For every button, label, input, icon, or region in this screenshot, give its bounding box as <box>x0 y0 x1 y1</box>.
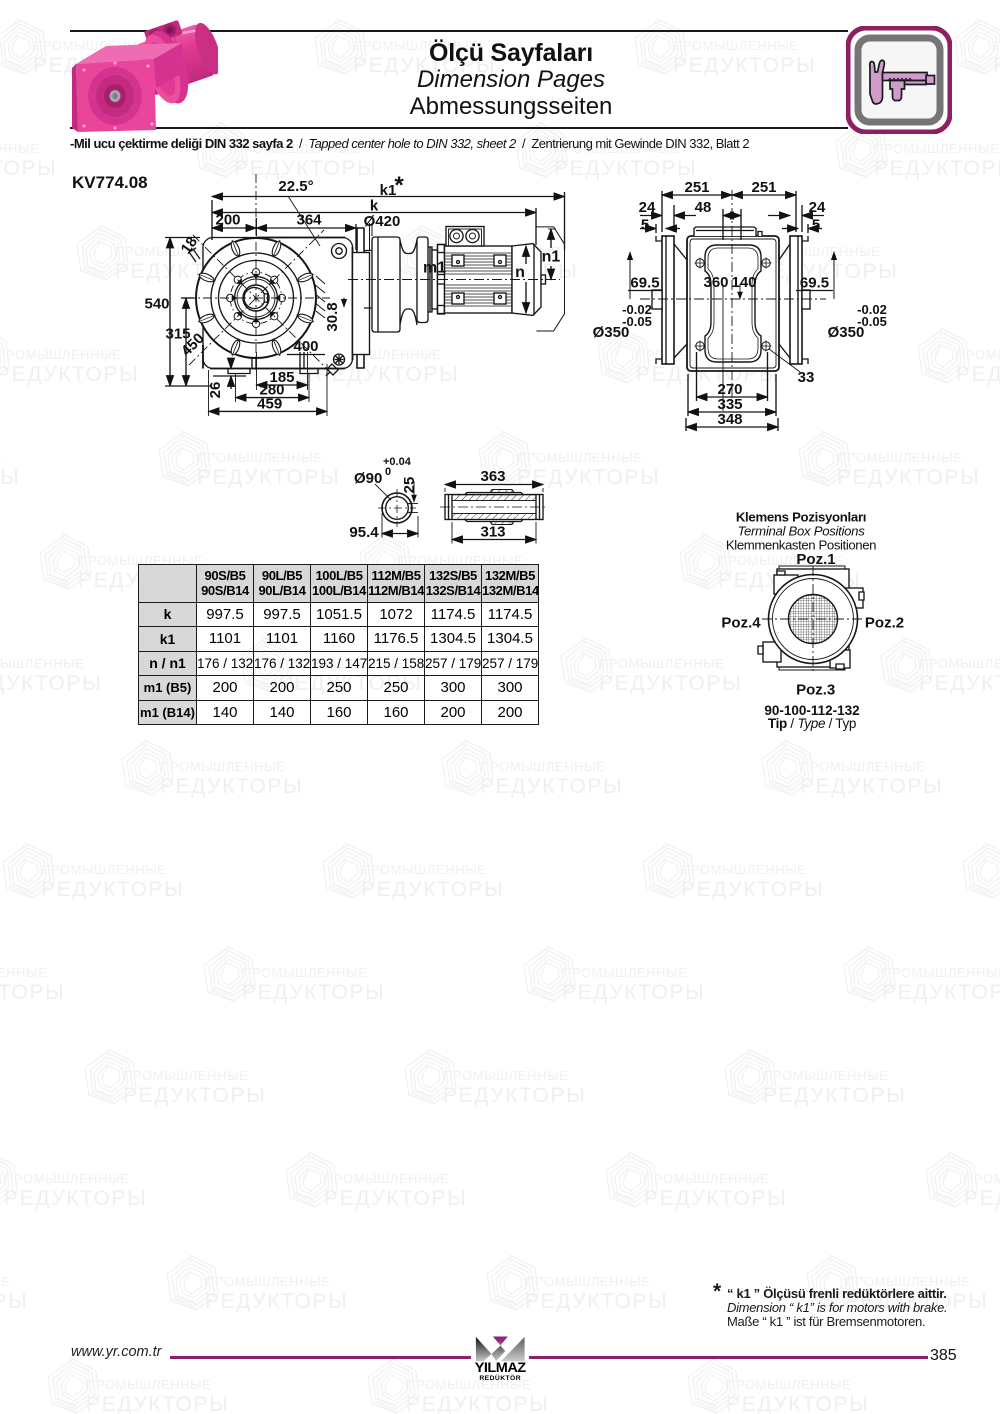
svg-text:400: 400 <box>293 338 318 355</box>
svg-text:YILMAZ: YILMAZ <box>475 1359 527 1375</box>
svg-text:26: 26 <box>207 382 224 399</box>
svg-text:Ø90: Ø90 <box>354 470 382 487</box>
svg-text:363: 363 <box>480 468 505 485</box>
svg-text:95.4: 95.4 <box>349 524 379 541</box>
svg-text:25: 25 <box>401 477 418 494</box>
svg-text:30.8: 30.8 <box>324 302 341 331</box>
svg-text:k: k <box>370 198 379 215</box>
svg-text:-0.05: -0.05 <box>857 314 887 329</box>
svg-text:Ø420: Ø420 <box>364 213 401 230</box>
svg-text:69.5: 69.5 <box>630 275 659 292</box>
svg-text:-0.05: -0.05 <box>622 314 652 329</box>
svg-text:n1: n1 <box>542 249 561 266</box>
svg-text:Poz.4: Poz.4 <box>721 615 761 632</box>
svg-text:5: 5 <box>812 217 820 234</box>
svg-text:348: 348 <box>717 411 742 428</box>
svg-text:n: n <box>515 264 525 281</box>
svg-text:24: 24 <box>639 199 656 216</box>
svg-text:459: 459 <box>257 395 282 412</box>
svg-text:360: 360 <box>703 274 728 291</box>
svg-text:m1: m1 <box>423 260 446 277</box>
svg-text:*: * <box>394 172 404 199</box>
svg-text:364: 364 <box>296 212 322 229</box>
svg-text:Klemens Pozisyonları: Klemens Pozisyonları <box>736 510 866 525</box>
svg-text:33: 33 <box>798 369 815 386</box>
svg-text:Terminal Box Positions: Terminal Box Positions <box>737 524 865 539</box>
svg-text:200: 200 <box>215 212 240 229</box>
svg-text:22.5°: 22.5° <box>278 178 313 195</box>
svg-text:Poz.3: Poz.3 <box>796 682 835 699</box>
svg-text:Poz.1: Poz.1 <box>796 551 835 568</box>
svg-text:313: 313 <box>480 524 505 541</box>
svg-text:5: 5 <box>641 217 649 234</box>
svg-text:251: 251 <box>751 179 776 196</box>
svg-text:0: 0 <box>385 466 391 478</box>
svg-text:140: 140 <box>731 274 756 291</box>
svg-text:48: 48 <box>695 199 712 216</box>
svg-text:24: 24 <box>809 199 826 216</box>
svg-text:Poz.2: Poz.2 <box>865 615 904 632</box>
svg-text:REDÜKTÖR: REDÜKTÖR <box>479 1373 521 1382</box>
svg-text:540: 540 <box>144 296 169 313</box>
svg-text:Tip / Type / Typ: Tip / Type / Typ <box>768 716 856 731</box>
svg-text:69.5: 69.5 <box>800 275 829 292</box>
svg-text:251: 251 <box>684 179 709 196</box>
